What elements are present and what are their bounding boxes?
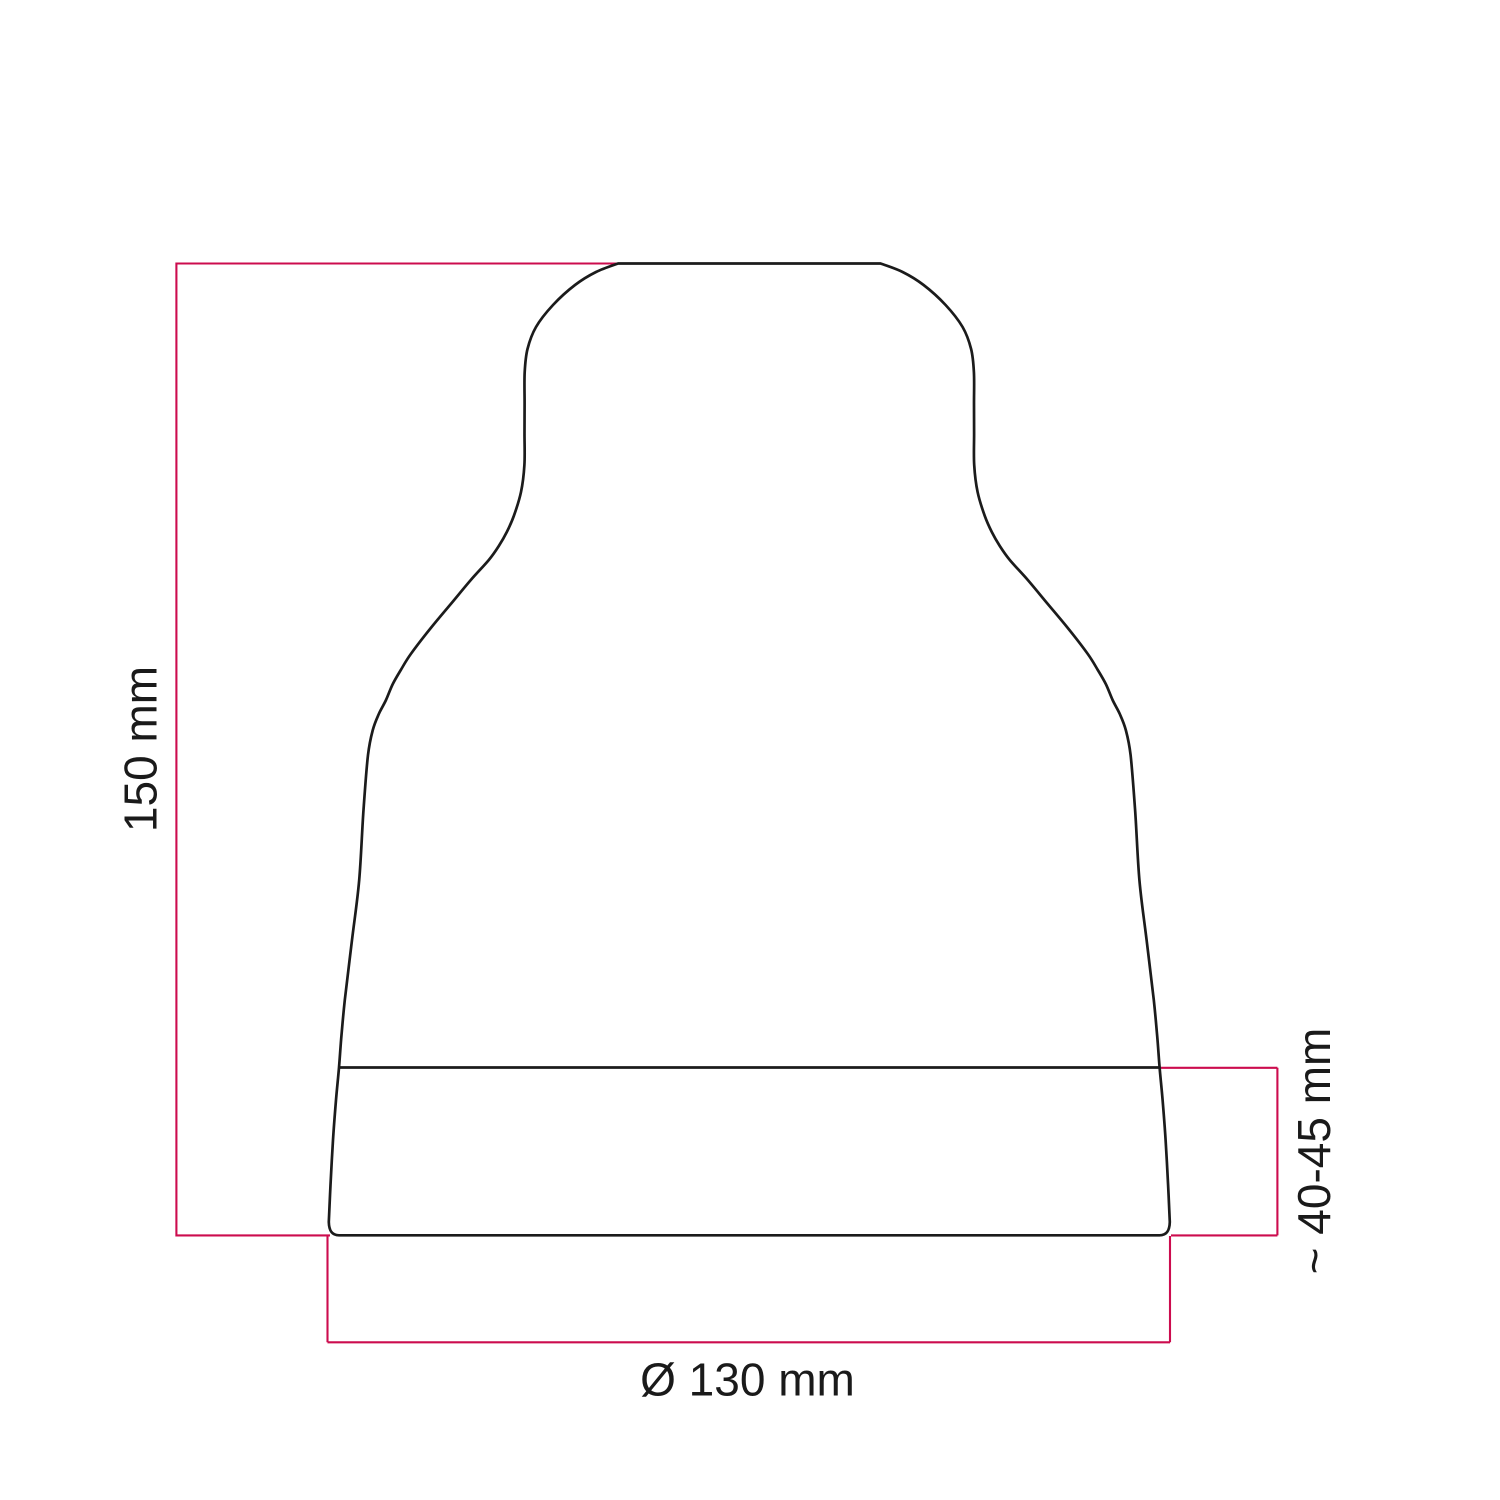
svg-text:150 mm: 150 mm <box>115 666 167 832</box>
svg-text:Ø 130 mm: Ø 130 mm <box>640 1354 855 1406</box>
svg-text:~ 40-45 mm: ~ 40-45 mm <box>1288 1028 1340 1275</box>
